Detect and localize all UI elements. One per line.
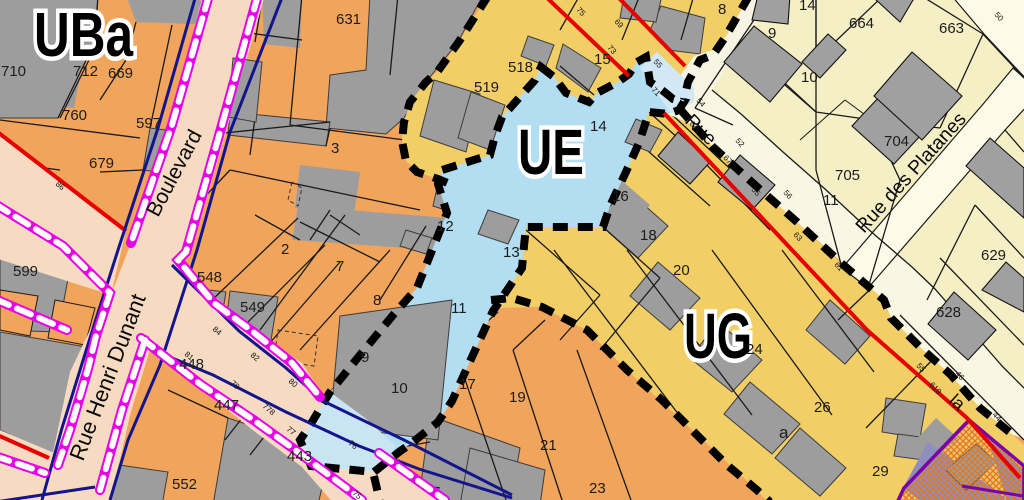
svg-text:21: 21 (540, 437, 557, 454)
svg-text:447: 447 (214, 397, 239, 414)
svg-text:24: 24 (746, 341, 763, 358)
svg-text:631: 631 (336, 11, 361, 28)
svg-text:549: 549 (240, 299, 265, 316)
svg-text:597: 597 (136, 115, 161, 132)
svg-text:8: 8 (718, 1, 726, 18)
svg-text:7: 7 (336, 258, 344, 275)
svg-text:705: 705 (835, 167, 860, 184)
svg-text:552: 552 (172, 476, 197, 493)
svg-text:23: 23 (589, 480, 606, 497)
svg-text:11: 11 (451, 300, 467, 317)
svg-text:13: 13 (503, 244, 520, 261)
svg-text:UG: UG (684, 300, 752, 372)
svg-text:519: 519 (474, 79, 499, 96)
svg-text:18: 18 (640, 227, 657, 244)
svg-text:12: 12 (437, 218, 454, 235)
svg-text:704: 704 (884, 133, 909, 150)
svg-text:14: 14 (590, 118, 607, 135)
svg-text:664: 664 (849, 15, 874, 32)
svg-text:710: 710 (1, 63, 26, 80)
svg-text:628: 628 (936, 304, 961, 321)
svg-text:679: 679 (89, 155, 114, 172)
svg-text:548: 548 (197, 269, 222, 286)
svg-text:629: 629 (981, 247, 1006, 264)
svg-text:29: 29 (872, 463, 889, 480)
svg-text:518: 518 (508, 59, 533, 76)
svg-text:16: 16 (612, 188, 629, 205)
svg-text:760: 760 (62, 107, 87, 124)
svg-text:a: a (779, 423, 789, 442)
svg-text:669: 669 (108, 65, 133, 82)
svg-text:712: 712 (73, 63, 98, 80)
svg-text:10: 10 (391, 380, 408, 397)
svg-text:599: 599 (13, 263, 38, 280)
svg-text:UE: UE (518, 116, 584, 188)
svg-text:20: 20 (673, 262, 690, 279)
svg-text:19: 19 (509, 389, 526, 406)
svg-text:8: 8 (373, 292, 381, 309)
svg-text:2: 2 (281, 241, 289, 258)
svg-text:14: 14 (799, 0, 816, 14)
svg-text:26: 26 (814, 399, 831, 416)
svg-text:15: 15 (594, 51, 611, 68)
svg-text:663: 663 (939, 20, 964, 37)
svg-text:443: 443 (287, 448, 312, 465)
svg-text:9: 9 (768, 25, 776, 42)
svg-text:9: 9 (361, 349, 369, 366)
svg-text:UBa: UBa (34, 1, 133, 70)
svg-text:10: 10 (801, 69, 818, 86)
svg-text:17: 17 (459, 376, 476, 393)
svg-text:3: 3 (331, 140, 339, 157)
svg-text:11: 11 (823, 192, 839, 209)
